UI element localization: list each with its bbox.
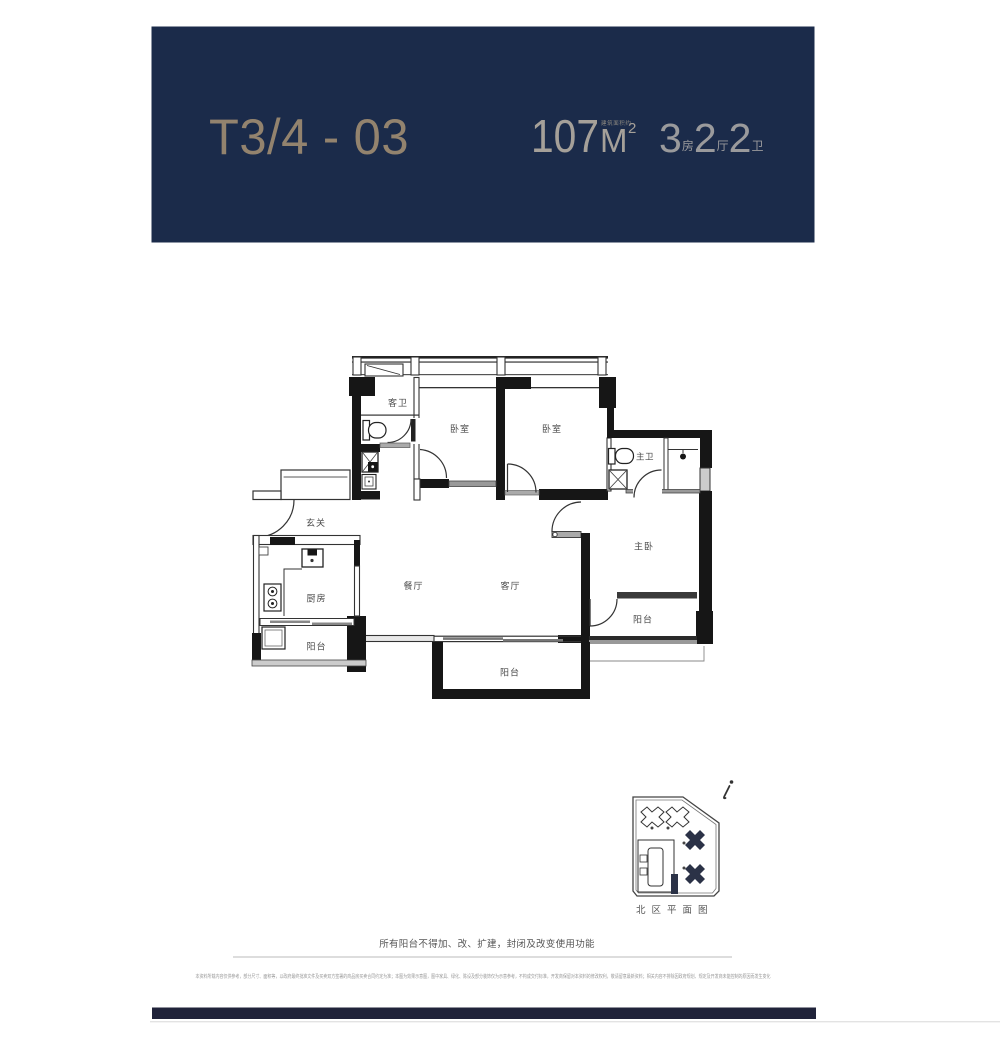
svg-text:客厅: 客厅 [501, 580, 521, 591]
svg-text:主卫: 主卫 [636, 452, 654, 462]
svg-text:阳台: 阳台 [500, 667, 520, 678]
svg-text:卧室: 卧室 [450, 423, 470, 434]
svg-text:厨房: 厨房 [307, 593, 327, 604]
svg-text:T3/4 - 03: T3/4 - 03 [209, 109, 409, 165]
svg-text:M: M [600, 122, 628, 159]
svg-text:3房2厅2卫: 3房2厅2卫 [659, 115, 763, 161]
svg-text:客卫: 客卫 [388, 397, 408, 408]
svg-text:2: 2 [628, 120, 636, 137]
svg-text:所有阳台不得加、改、扩建，封闭及改变使用功能: 所有阳台不得加、改、扩建，封闭及改变使用功能 [379, 938, 595, 950]
svg-text:阳台: 阳台 [633, 614, 653, 625]
svg-text:玄关: 玄关 [306, 517, 326, 528]
svg-text:北区平面图: 北区平面图 [636, 905, 714, 916]
svg-text:107: 107 [531, 110, 599, 162]
svg-text:主卧: 主卧 [634, 541, 654, 552]
svg-text:本资料所载内容仅供参考，部分尺寸、面积等，以政府最终批准文件: 本资料所载内容仅供参考，部分尺寸、面积等，以政府最终批准文件及买卖双方签署的商品… [196, 973, 771, 980]
svg-text:卧室: 卧室 [542, 423, 562, 434]
svg-text:阳台: 阳台 [307, 641, 327, 652]
svg-text:餐厅: 餐厅 [404, 580, 424, 591]
